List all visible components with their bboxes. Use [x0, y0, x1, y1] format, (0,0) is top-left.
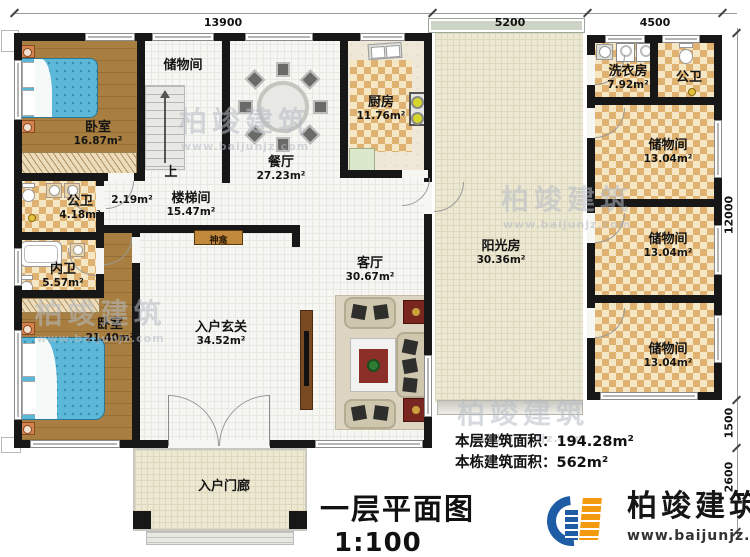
cushion	[373, 304, 389, 320]
wall	[14, 290, 104, 298]
wall	[650, 35, 658, 105]
right-dimension-line	[737, 28, 738, 540]
window	[714, 225, 722, 275]
room-label-storage-top: 储物间	[163, 59, 202, 73]
room-label-porch: 入户门廊	[198, 480, 250, 494]
window	[714, 120, 722, 178]
sunroom-bottom-sill	[437, 400, 583, 415]
page-title: 一层平面图	[320, 486, 475, 528]
right-dim-12000: 12000	[723, 196, 736, 234]
wall	[587, 199, 722, 207]
nightstand	[20, 422, 35, 435]
brand-text: 柏竣建筑 www.baijunjz.com	[627, 492, 750, 544]
top-dim-5200: 5200	[495, 16, 526, 29]
door-gap	[587, 108, 595, 138]
room-label-dining: 餐厅 27.23m²	[257, 156, 306, 182]
burner-icon	[411, 112, 424, 125]
brand-logo: 柏竣建筑 www.baijunjz.com	[545, 490, 745, 552]
cushion	[402, 377, 417, 392]
brand-url: www.baijunjz.com	[627, 528, 750, 544]
drain-icon	[28, 214, 36, 222]
sink-basin	[386, 45, 401, 58]
bed-sheet	[34, 59, 52, 117]
bedroom2-wardrobe	[18, 298, 100, 313]
floor-plan: 13900 5200 4500 12000 1500 2600	[0, 0, 750, 557]
wall	[14, 232, 104, 240]
wall	[340, 33, 348, 178]
bed	[20, 58, 98, 118]
dining-chair	[276, 62, 290, 77]
toilet-tank	[679, 43, 693, 48]
logo-building-orange-icon	[579, 498, 602, 540]
coffee-table	[350, 338, 396, 392]
door-gap	[587, 55, 595, 85]
cushion	[351, 304, 367, 320]
stairs-arrow-line	[164, 95, 166, 163]
room-label-kitchen: 厨房 11.76m²	[357, 96, 406, 122]
window	[600, 392, 698, 400]
room-label-stairwell: 楼梯间 15.47m²	[167, 192, 216, 218]
room-label-storage3: 储物间 13.04m²	[644, 343, 693, 369]
cushion	[351, 405, 367, 421]
toilet	[679, 43, 693, 63]
top-dim-13900: 13900	[204, 16, 242, 29]
nightstand	[20, 322, 35, 335]
wall	[292, 225, 300, 247]
wall	[587, 295, 722, 303]
bedroom1-wardrobe	[18, 152, 137, 174]
porch-column	[133, 511, 151, 529]
room-label-storage1: 储物间 13.04m²	[644, 139, 693, 165]
window	[14, 60, 22, 120]
logo-building-blue-icon	[565, 510, 578, 540]
title-block: 一层平面图1:100 占地面积：202.34m² 层高：3.6m	[320, 486, 520, 557]
dining-table	[257, 81, 309, 133]
nightstand	[20, 120, 35, 133]
room-label-bath1: 公卫 4.18m²	[59, 195, 100, 221]
scale-label: 1:100	[334, 528, 422, 557]
window	[85, 33, 135, 41]
plant-icon	[367, 359, 380, 372]
wall	[137, 33, 145, 181]
lamp-icon	[23, 123, 32, 132]
lamp-icon	[23, 425, 32, 434]
dining-chair	[276, 137, 290, 152]
room-label-stairs-up: 上	[164, 166, 177, 180]
room-label-bath2: 内卫 5.57m²	[42, 263, 83, 289]
sofa	[344, 399, 396, 429]
room-label-sunroom: 阳光房 30.36m²	[477, 240, 526, 266]
burner-icon	[411, 96, 424, 109]
door-gap	[587, 308, 595, 338]
entry-door-left-leaf	[168, 395, 169, 446]
floor-area-note: 本层建筑面积：194.28m²	[455, 430, 634, 451]
brand-name: 柏竣建筑	[627, 492, 750, 522]
window	[14, 248, 22, 286]
toilet-bowl	[679, 49, 693, 64]
dining-chair	[313, 100, 328, 114]
room-label-bath3: 公卫	[676, 71, 702, 85]
drain-icon	[688, 88, 696, 96]
cushion	[402, 358, 418, 374]
room-label-living: 客厅 30.67m²	[346, 257, 395, 283]
room-label-bedroom2: 卧室 21.40m²	[86, 318, 135, 344]
top-dimension-line	[14, 13, 737, 14]
sunroom-floor	[435, 33, 583, 402]
room-label-bedroom1: 卧室 16.87m²	[74, 121, 123, 147]
window	[360, 33, 405, 41]
kitchen-sink	[367, 42, 402, 60]
window	[14, 330, 22, 420]
door-gap	[587, 213, 595, 243]
window	[714, 315, 722, 363]
window	[605, 35, 645, 43]
cushion	[373, 405, 389, 421]
window	[245, 33, 313, 41]
bed	[20, 337, 105, 420]
toilet	[22, 183, 35, 201]
mat-emblem-icon	[412, 308, 420, 316]
wall	[222, 33, 230, 183]
door-gap	[402, 170, 428, 178]
shrine: 神龛	[194, 230, 243, 245]
stairs-arrow-head	[160, 90, 170, 98]
bathtub-inner	[24, 245, 58, 263]
door-gap	[108, 173, 134, 181]
room-label-foyer: 入户玄关 34.52m²	[195, 321, 247, 347]
lamp-icon	[23, 325, 32, 334]
toilet-tank	[22, 183, 35, 188]
window	[315, 440, 423, 448]
tv-icon	[304, 331, 309, 386]
room-label-laundry: 洗衣房 7.92m²	[607, 65, 648, 91]
lamp-icon	[23, 48, 32, 57]
sink-bowl-icon	[49, 185, 60, 196]
sink-basin	[371, 46, 386, 59]
right-dim-1500: 1500	[723, 408, 736, 439]
window	[662, 35, 700, 43]
room-label-closet: 2.19m²	[111, 194, 152, 206]
porch-steps	[146, 531, 294, 545]
sofa	[344, 297, 396, 329]
window	[424, 355, 432, 417]
door-gap	[132, 237, 140, 263]
bed-sheet	[35, 338, 57, 419]
porch-column	[289, 511, 307, 529]
mat-emblem-icon	[412, 406, 420, 414]
building-area-note: 本栋建筑面积：562m²	[455, 451, 608, 472]
room-label-storage2: 储物间 13.04m²	[644, 233, 693, 259]
top-dim-4500: 4500	[640, 16, 671, 29]
dining-chair	[238, 100, 253, 114]
cushion	[402, 339, 419, 356]
entry-door-right-leaf	[269, 395, 270, 446]
toilet-bowl	[22, 189, 35, 202]
shrine-label: 神龛	[209, 236, 227, 246]
tv-cabinet	[300, 310, 313, 410]
door-gap	[96, 248, 104, 274]
nightstand	[20, 45, 35, 58]
window	[152, 33, 214, 41]
kitchen-counter	[349, 148, 375, 171]
right-dim-2600: 2600	[723, 462, 736, 493]
window	[30, 440, 120, 448]
